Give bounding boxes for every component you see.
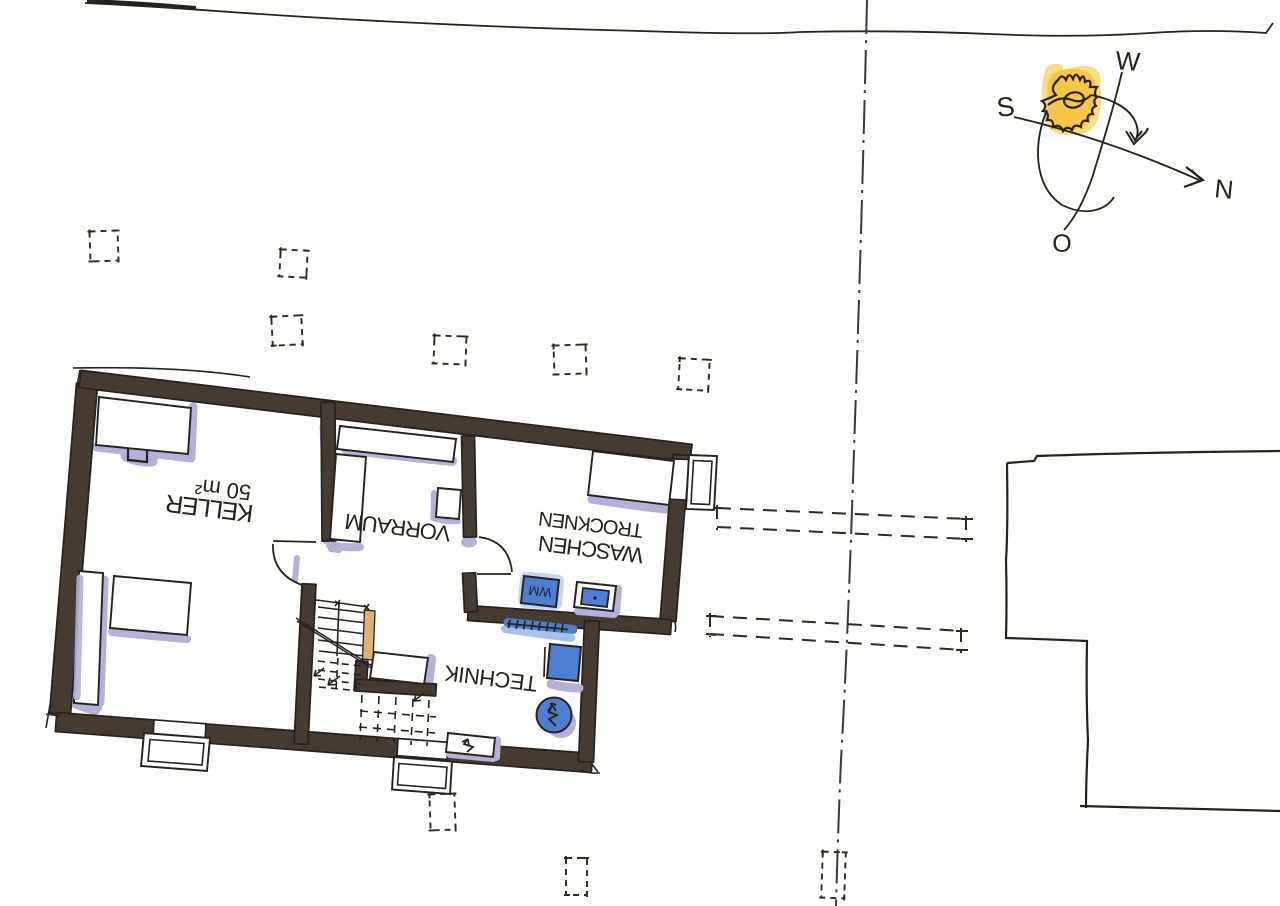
svg-text:O: O	[1052, 230, 1071, 258]
svg-text:W: W	[1115, 45, 1142, 77]
svg-text:N: N	[1213, 173, 1235, 205]
svg-text:S: S	[995, 91, 1016, 123]
svg-text:WM: WM	[528, 583, 553, 601]
